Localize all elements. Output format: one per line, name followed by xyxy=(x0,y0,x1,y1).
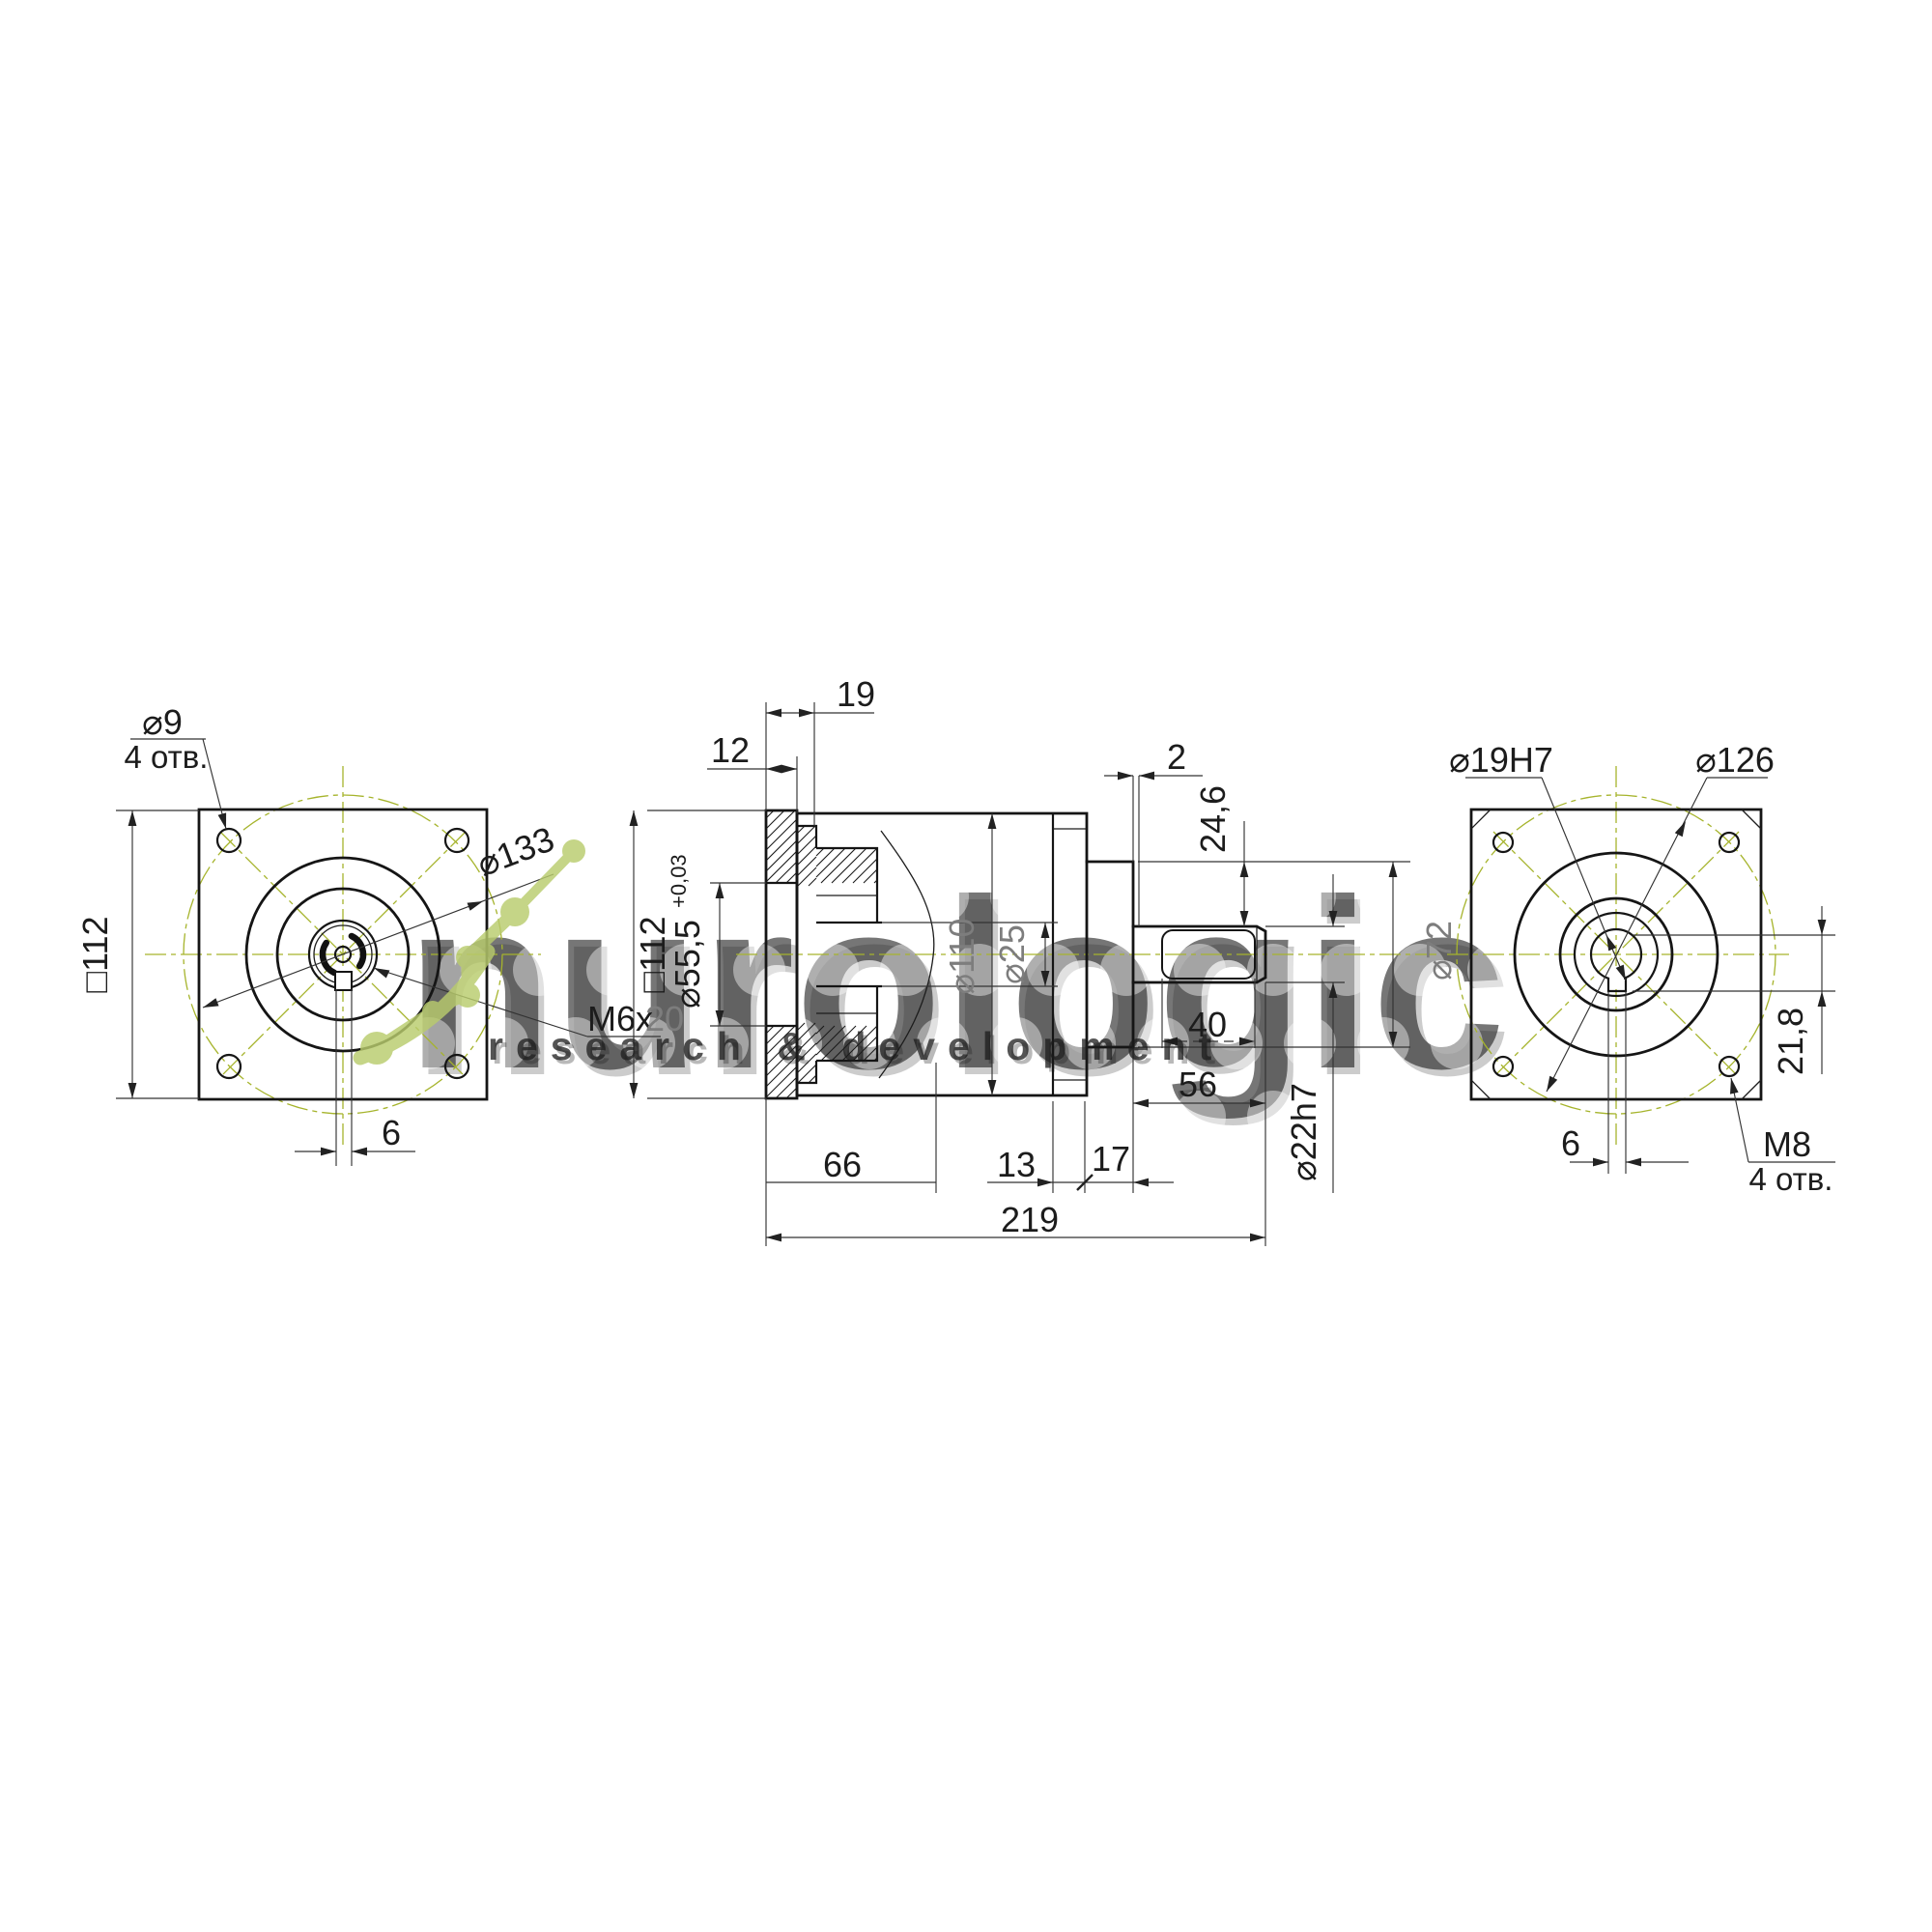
section-flange-thk-label: 12 xyxy=(711,730,750,770)
watermark-dot xyxy=(476,1164,528,1216)
watermark-dot xyxy=(1100,944,1152,996)
rear-key-depth-label: 21,8 xyxy=(1771,1008,1810,1075)
watermark-dot xyxy=(1064,870,1116,923)
section-body-dia-label: ⌀110 xyxy=(942,918,981,994)
watermark-dot xyxy=(660,650,712,702)
section-input-bore-label: ⌀25 xyxy=(992,924,1032,984)
section-shaft-dia-label: ⌀22h7 xyxy=(1284,1083,1323,1181)
watermark-dot xyxy=(917,870,969,923)
molecule-node xyxy=(455,982,480,1008)
watermark-dot xyxy=(733,650,785,702)
watermark-dot xyxy=(1394,1091,1446,1143)
arrowhead xyxy=(1250,1234,1265,1242)
section-pilot-bore-tolerance: +0,03 xyxy=(667,854,691,908)
watermark-dot xyxy=(293,650,345,702)
arrowhead xyxy=(766,709,781,718)
rear-thread-label: M8 xyxy=(1763,1124,1811,1164)
molecule-node xyxy=(500,897,529,926)
watermark-dot xyxy=(329,1164,382,1216)
front-thread-label: M6x xyxy=(587,999,653,1038)
arrowhead xyxy=(128,1083,137,1098)
watermark-dot xyxy=(586,1091,639,1143)
rear-thread-count-label: 4 отв. xyxy=(1749,1161,1833,1197)
watermark-dot xyxy=(1174,650,1226,702)
section-square-label: □112 xyxy=(633,916,672,992)
arrowhead xyxy=(128,810,137,826)
watermark-dot xyxy=(1431,1017,1483,1069)
arrowhead xyxy=(1547,1076,1557,1092)
watermark-dot xyxy=(513,944,565,996)
front-key-width-label: 6 xyxy=(382,1113,401,1152)
watermark-dot xyxy=(513,1091,565,1143)
watermark-dot xyxy=(403,724,455,776)
watermark-dot xyxy=(1284,1017,1336,1069)
watermark-dot xyxy=(880,944,932,996)
watermark-dot xyxy=(953,650,1006,702)
arrowhead xyxy=(1730,1078,1739,1094)
front-hole-count-label: 4 отв. xyxy=(125,739,209,775)
section-shoulder-label: 24,6 xyxy=(1193,785,1233,853)
watermark-dot xyxy=(880,1091,932,1143)
watermark-dot xyxy=(1357,870,1409,923)
watermark-dot xyxy=(1394,650,1446,702)
watermark-dot xyxy=(1394,797,1446,849)
watermark-dot xyxy=(550,724,602,776)
watermark-dot xyxy=(440,650,492,702)
arrowhead xyxy=(1118,772,1133,781)
section-wall-label: 13 xyxy=(997,1145,1036,1184)
watermark-dot xyxy=(733,944,785,996)
watermark-dot xyxy=(990,724,1042,776)
watermark-dot xyxy=(1431,870,1483,923)
arrowhead xyxy=(321,1148,336,1156)
technical-drawing-canvas: nurologic nurologic xyxy=(0,0,1932,1932)
watermark-dot xyxy=(1467,650,1520,702)
section-gap-label: 2 xyxy=(1167,737,1186,777)
watermark-dot xyxy=(1210,1164,1263,1216)
molecule-node xyxy=(422,1001,443,1022)
watermark-dot xyxy=(917,1164,969,1216)
arrowhead xyxy=(1675,821,1686,837)
watermark-dot xyxy=(770,1164,822,1216)
arrowhead xyxy=(1139,772,1154,781)
watermark-dot xyxy=(1284,724,1336,776)
watermark-dot xyxy=(1467,944,1520,996)
watermark-dot xyxy=(1100,797,1152,849)
watermark-dot xyxy=(1027,650,1079,702)
watermark-dot xyxy=(1210,724,1263,776)
watermark-dot xyxy=(953,1091,1006,1143)
watermark-dot xyxy=(733,797,785,849)
watermark-dot xyxy=(1321,797,1373,849)
watermark-dot xyxy=(366,650,418,702)
watermark-dot xyxy=(1284,870,1336,923)
watermark-dot xyxy=(1137,870,1189,923)
watermark-dot xyxy=(476,724,528,776)
molecule-node xyxy=(562,839,585,863)
watermark-dot xyxy=(1210,870,1263,923)
rear-dimension-lines xyxy=(1465,778,1835,1174)
watermark-dot xyxy=(329,724,382,776)
watermark-dot xyxy=(1357,724,1409,776)
front-square-label: □112 xyxy=(75,916,115,992)
watermark-dot xyxy=(1504,1164,1556,1216)
watermark-dot xyxy=(880,650,932,702)
drawing-page: { "title": "gearbox technical drawing", … xyxy=(0,0,1932,1932)
watermark-dot xyxy=(1357,1164,1409,1216)
rear-center-bore-label: ⌀19H7 xyxy=(1449,740,1553,780)
molecule-node xyxy=(456,946,479,969)
watermark-dot xyxy=(1100,650,1152,702)
watermark-dot xyxy=(843,724,895,776)
arrowhead xyxy=(799,709,814,718)
watermark-dot xyxy=(1137,1164,1189,1216)
watermark-dot xyxy=(917,724,969,776)
front-keyway xyxy=(335,972,352,990)
section-hub-length-label: 66 xyxy=(823,1145,862,1184)
arrowhead xyxy=(1606,935,1616,951)
arrowhead xyxy=(1818,920,1827,935)
watermark-dot xyxy=(366,797,418,849)
section-pilot-depth-label: 19 xyxy=(837,674,875,714)
watermark-dot xyxy=(807,1091,859,1143)
section-boss-dia-label: ⌀72 xyxy=(1419,921,1459,980)
watermark-dot xyxy=(1357,1017,1409,1069)
watermark-dot xyxy=(1100,1091,1152,1143)
arrowhead xyxy=(766,1234,781,1242)
section-key-length-label: 40 xyxy=(1188,1005,1227,1044)
watermark-dot xyxy=(586,650,639,702)
watermark-dot xyxy=(1247,650,1299,702)
arrowhead xyxy=(218,812,227,829)
watermark-dot xyxy=(550,870,602,923)
watermark-dot xyxy=(1321,1091,1373,1143)
rear-key-width-label: 6 xyxy=(1561,1123,1580,1163)
watermark-dot xyxy=(1431,1164,1483,1216)
arrowhead xyxy=(1037,1179,1053,1187)
molecule-node xyxy=(360,1032,393,1065)
arrowhead xyxy=(352,1148,367,1156)
watermark-dot xyxy=(403,1164,455,1216)
watermark-dot xyxy=(550,1164,602,1216)
watermark-dot xyxy=(293,797,345,849)
watermark-dot xyxy=(623,1164,675,1216)
watermark-dot xyxy=(1174,944,1226,996)
watermark-dot xyxy=(1247,797,1299,849)
watermark-dot xyxy=(990,870,1042,923)
watermark-dot xyxy=(953,797,1006,849)
arrowhead xyxy=(1593,1158,1608,1167)
section-total-length-label: 219 xyxy=(1001,1200,1059,1239)
watermark-dot xyxy=(1064,724,1116,776)
section-shaft-length-label: 56 xyxy=(1179,1065,1217,1104)
rear-bolt-circle-label: ⌀126 xyxy=(1695,740,1775,780)
section-pilot-bore-value: ⌀55,5 xyxy=(668,920,707,1009)
watermark-dot xyxy=(807,944,859,996)
watermark-dot xyxy=(843,870,895,923)
front-clamp-arc xyxy=(352,936,363,966)
watermark-dot xyxy=(660,797,712,849)
arrowhead xyxy=(766,765,781,774)
watermark-dot xyxy=(696,1164,749,1216)
arrowhead xyxy=(203,998,219,1008)
watermark-dot xyxy=(513,650,565,702)
arrowhead xyxy=(1818,991,1827,1007)
front-hole-dia-label: ⌀9 xyxy=(142,702,183,742)
watermark-dot xyxy=(1321,944,1373,996)
arrowhead xyxy=(1626,1158,1641,1167)
watermark-dot xyxy=(586,944,639,996)
watermark-dot xyxy=(623,724,675,776)
watermark-dot xyxy=(1321,650,1373,702)
section-boss-length-label: 17 xyxy=(1092,1139,1130,1179)
